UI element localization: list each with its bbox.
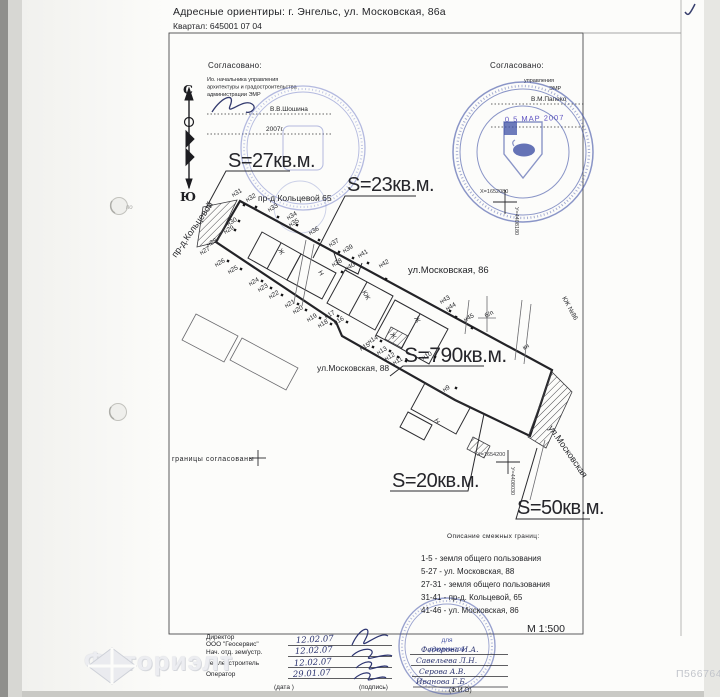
table-role2: ООО "Геосервис" [206, 641, 259, 648]
boundary-point: н41 [357, 248, 370, 260]
compass: С Ю [180, 82, 196, 204]
boundary-point-marker [371, 345, 374, 348]
boundary-point: н37 [328, 237, 341, 249]
building-label: Ж [412, 316, 421, 325]
boundary-point: н23 [257, 282, 270, 294]
boundary-point-marker [366, 261, 369, 264]
signature [212, 97, 254, 112]
coat-of-arms [504, 122, 542, 178]
boundary-point-marker [269, 286, 272, 289]
table-name: Савельева Л.Н. [416, 656, 477, 665]
legend-item: 27-31 - земля общего пользования [421, 580, 550, 589]
approval-left-line1: Ио. начальника управления [207, 77, 278, 83]
checkmark [685, 4, 695, 14]
boundary-point: н19 [306, 312, 319, 324]
grid-coordinate: У=4408030 [509, 467, 515, 495]
boundary-approved-note: границы согласованы [172, 456, 254, 463]
grid-coordinate: Х=1654200 [477, 452, 505, 458]
boundary-point-marker [345, 320, 348, 323]
boundary-point-marker [280, 293, 283, 296]
boundary-point: н38 [331, 257, 344, 269]
table-name: Федорова И.А. [421, 645, 478, 654]
address-line: Адресные ориентиры: г. Энгельс, ул. Моск… [173, 6, 446, 18]
boundary-point: н36 [308, 225, 321, 237]
building-label: КЖ [360, 290, 371, 302]
legend-item: 1-5 - земля общего пользования [421, 554, 541, 563]
site-plan-drawing: Адресные ориентиры: г. Энгельс, ул. Моск… [0, 0, 720, 697]
legend: Описание смежных границ: 1-5 - земля общ… [421, 533, 550, 615]
boundary-point-marker [226, 259, 229, 262]
grid-crosses [250, 190, 520, 474]
boundary-point: н42 [378, 258, 391, 270]
margin-mark: по [126, 205, 133, 211]
street-label: ул.Московская, 86 [408, 265, 489, 276]
buildings [248, 232, 470, 440]
building-label: Н [316, 270, 325, 278]
legend-title: Описание смежных границ: [447, 533, 540, 540]
table-role: Директор [206, 634, 235, 641]
boundary-point-marker [317, 238, 320, 241]
boundary-point: н32 [245, 192, 258, 204]
boundary-point: н33 [267, 202, 280, 214]
boundary-point: н25 [227, 264, 240, 276]
boundary-point: н22 [268, 289, 281, 301]
street-label: пр-д Кольцевой 65 [258, 193, 332, 203]
compass-south-label: Ю [180, 189, 196, 204]
plan-note: кн [522, 342, 531, 351]
approval-left-line3: администрации ЭМР [207, 92, 261, 98]
table-date: 12.02.07 [295, 645, 334, 657]
footer-name: (Ф.И.О) [449, 687, 472, 694]
grid-coordinate: Х=1652080 [480, 189, 508, 195]
boundary-point-marker [351, 256, 354, 259]
approval-right-line2: ЭМР [549, 86, 562, 92]
hatched-areas [197, 200, 572, 458]
table-role: Землеустроитель [206, 660, 260, 667]
round-stamp-right [453, 82, 593, 222]
signature [352, 629, 392, 680]
approval-left-title: Согласовано: [208, 61, 262, 70]
table-date: 12.02.07 [296, 634, 335, 646]
boundary-point-marker [318, 316, 321, 319]
quarter-line: Квартал: 645001 07 04 [173, 21, 262, 31]
table-name: Серова А.В. [419, 667, 466, 676]
street-label: ул.Московская, 88 [317, 363, 389, 373]
approval-left: Согласовано: Ио. начальника управления а… [207, 61, 332, 134]
boundary-point-marker [454, 386, 457, 389]
approval-right: Согласовано: управления ЭМР В.М.Папеко 0… [490, 61, 584, 127]
legend-item: 41-46 - ул. Московская, 86 [421, 606, 519, 615]
boundary-point: н26 [214, 257, 227, 269]
table-role: Оператор [206, 671, 236, 678]
footer-date: (дата ) [274, 684, 294, 691]
approval-left-signer: В.В.Шошина [270, 106, 308, 113]
stamp-text-line1: для [441, 637, 453, 644]
grid-coordinate: У=4408180 [513, 207, 519, 235]
boundary-point-marker [260, 279, 263, 282]
boundary-point: н31 [231, 187, 244, 199]
boundary-point-marker [304, 308, 307, 311]
table-role: Нач. отд. зем/устр. [206, 649, 263, 656]
legend-item: 31-41 - пр-д. Кольцевой, 65 [421, 593, 523, 602]
footer-sign: (подпись) [359, 684, 388, 691]
boundary-point-marker [239, 267, 242, 270]
scale-label: М 1:500 [527, 623, 565, 635]
table-name: Иванова Г.Б. [415, 677, 467, 686]
approval-right-title: Согласовано: [490, 61, 544, 70]
area-label-50: S=50кв.м. [517, 497, 604, 519]
area-label-23: S=23кв.м. [347, 174, 434, 196]
photo-id: П566764 [676, 668, 720, 680]
boundary-point-marker [329, 322, 332, 325]
building-label: КЖ №86 [560, 296, 579, 322]
boundary-point: н39 [342, 243, 355, 255]
signature-table: Директор ООО "Геосервис" Нач. отд. зем/у… [206, 629, 508, 694]
area-label-27: S=27кв.м. [228, 150, 315, 172]
area-label-20: S=20кв.м. [392, 470, 479, 492]
approval-left-year: 2007г. [266, 126, 284, 133]
parcel-boundary [216, 201, 552, 436]
building-label: Н [432, 418, 441, 426]
hole-punch [110, 198, 128, 421]
boundary-point: н45 [463, 312, 476, 324]
legend-item: 5-27 - ул. Московская, 88 [421, 567, 515, 576]
boundary-point: н16 [333, 315, 346, 327]
boundary-point-marker [379, 339, 382, 342]
boundary-point: н9 [442, 384, 452, 394]
